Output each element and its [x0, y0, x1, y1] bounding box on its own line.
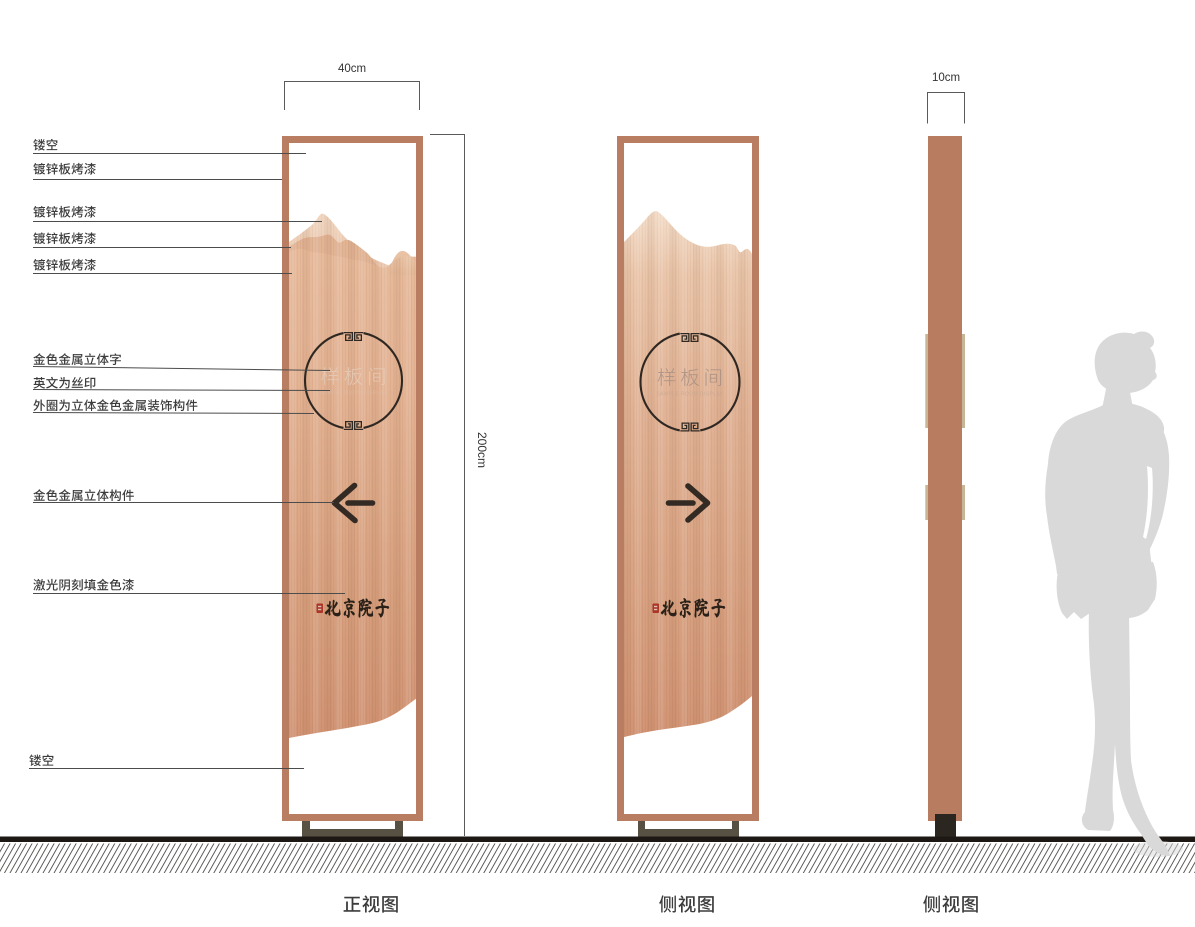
svg-text:10cm: 10cm [932, 72, 960, 84]
svg-text:SAMPLE ROOM DISPLAY: SAMPLE ROOM DISPLAY [657, 392, 724, 398]
svg-text:200cm: 200cm [475, 432, 489, 468]
svg-text:40cm: 40cm [338, 63, 366, 75]
svg-text:SAMPLE ROOM DISPLAY: SAMPLE ROOM DISPLAY [320, 391, 387, 397]
